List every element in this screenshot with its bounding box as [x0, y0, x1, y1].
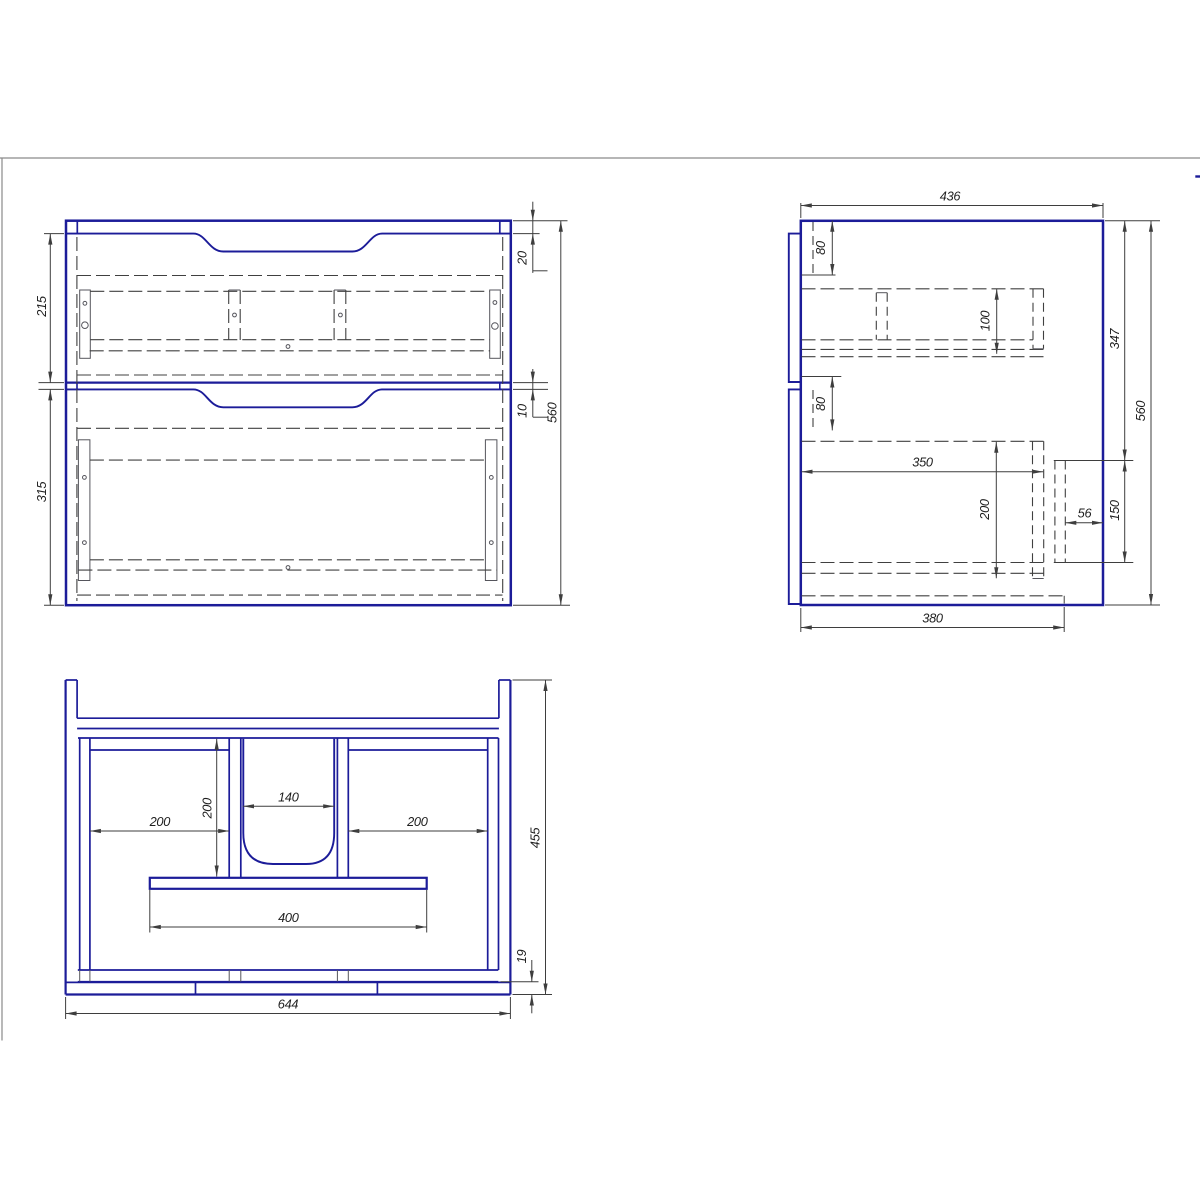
svg-text:347: 347	[1107, 328, 1122, 350]
svg-text:436: 436	[940, 188, 962, 203]
svg-text:200: 200	[149, 814, 172, 829]
svg-text:200: 200	[406, 814, 429, 829]
svg-text:380: 380	[922, 611, 944, 626]
svg-text:350: 350	[912, 455, 934, 470]
svg-text:455: 455	[528, 827, 543, 849]
svg-text:200: 200	[977, 498, 992, 521]
svg-text:20: 20	[515, 250, 530, 266]
svg-text:215: 215	[34, 295, 49, 318]
svg-text:80: 80	[813, 240, 828, 255]
svg-text:10: 10	[515, 403, 530, 418]
svg-text:200: 200	[200, 797, 215, 820]
svg-text:150: 150	[1107, 499, 1122, 521]
svg-text:644: 644	[278, 997, 299, 1012]
svg-text:560: 560	[1133, 400, 1148, 422]
svg-text:140: 140	[278, 789, 300, 804]
svg-text:400: 400	[278, 910, 300, 925]
svg-text:100: 100	[977, 310, 992, 332]
svg-text:19: 19	[514, 950, 529, 964]
svg-text:560: 560	[544, 401, 559, 423]
svg-text:315: 315	[34, 481, 49, 503]
svg-text:80: 80	[813, 396, 828, 411]
svg-text:56: 56	[1078, 505, 1093, 520]
